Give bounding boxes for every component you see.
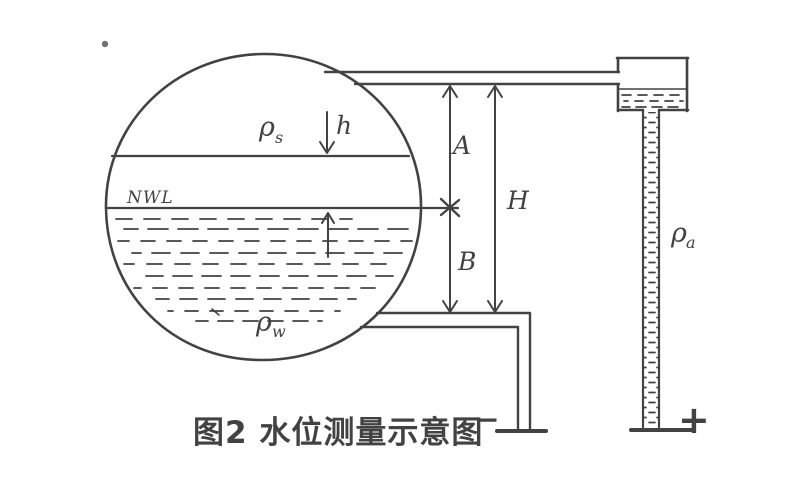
condensate-pot xyxy=(617,58,688,111)
pen-tick xyxy=(212,309,219,315)
dimension-line-h xyxy=(488,86,502,312)
water-fill-dashes xyxy=(116,219,416,321)
steam-density-sub: s xyxy=(275,128,283,147)
nwl-label: NWL xyxy=(126,188,174,208)
steam-density-label: ρ xyxy=(258,112,275,143)
dim-a-label: A xyxy=(451,131,471,160)
water-density-label: ρ xyxy=(255,307,272,338)
lower-water-pipe xyxy=(361,313,530,429)
dim-h-label: H xyxy=(506,186,530,215)
h-label: h xyxy=(336,111,352,140)
top-steam-pipe xyxy=(325,72,619,84)
figure-caption: 图2 水位测量示意图 xyxy=(193,415,483,451)
dimension-line-a-b xyxy=(441,86,459,312)
pot-water-dashes xyxy=(622,95,684,107)
water-density-sub: w xyxy=(272,322,286,341)
nwl-pointer-arrow xyxy=(322,213,334,257)
plus-sign: + xyxy=(678,398,710,442)
dim-b-label: B xyxy=(457,247,476,276)
level-offset-arrow xyxy=(320,112,334,153)
tube-water-ticks xyxy=(644,112,658,426)
water-level-diagram: ρ s h NWL ρ w A B H ρ a − + 图2 水位测量示意图 xyxy=(0,0,800,500)
scanned-diagram-page: ρ s h NWL ρ w A B H ρ a − + 图2 水位测量示意图 xyxy=(0,0,800,500)
scan-speck xyxy=(102,41,108,47)
reference-density-sub: a xyxy=(686,233,696,252)
reference-density-label: ρ xyxy=(670,218,687,249)
